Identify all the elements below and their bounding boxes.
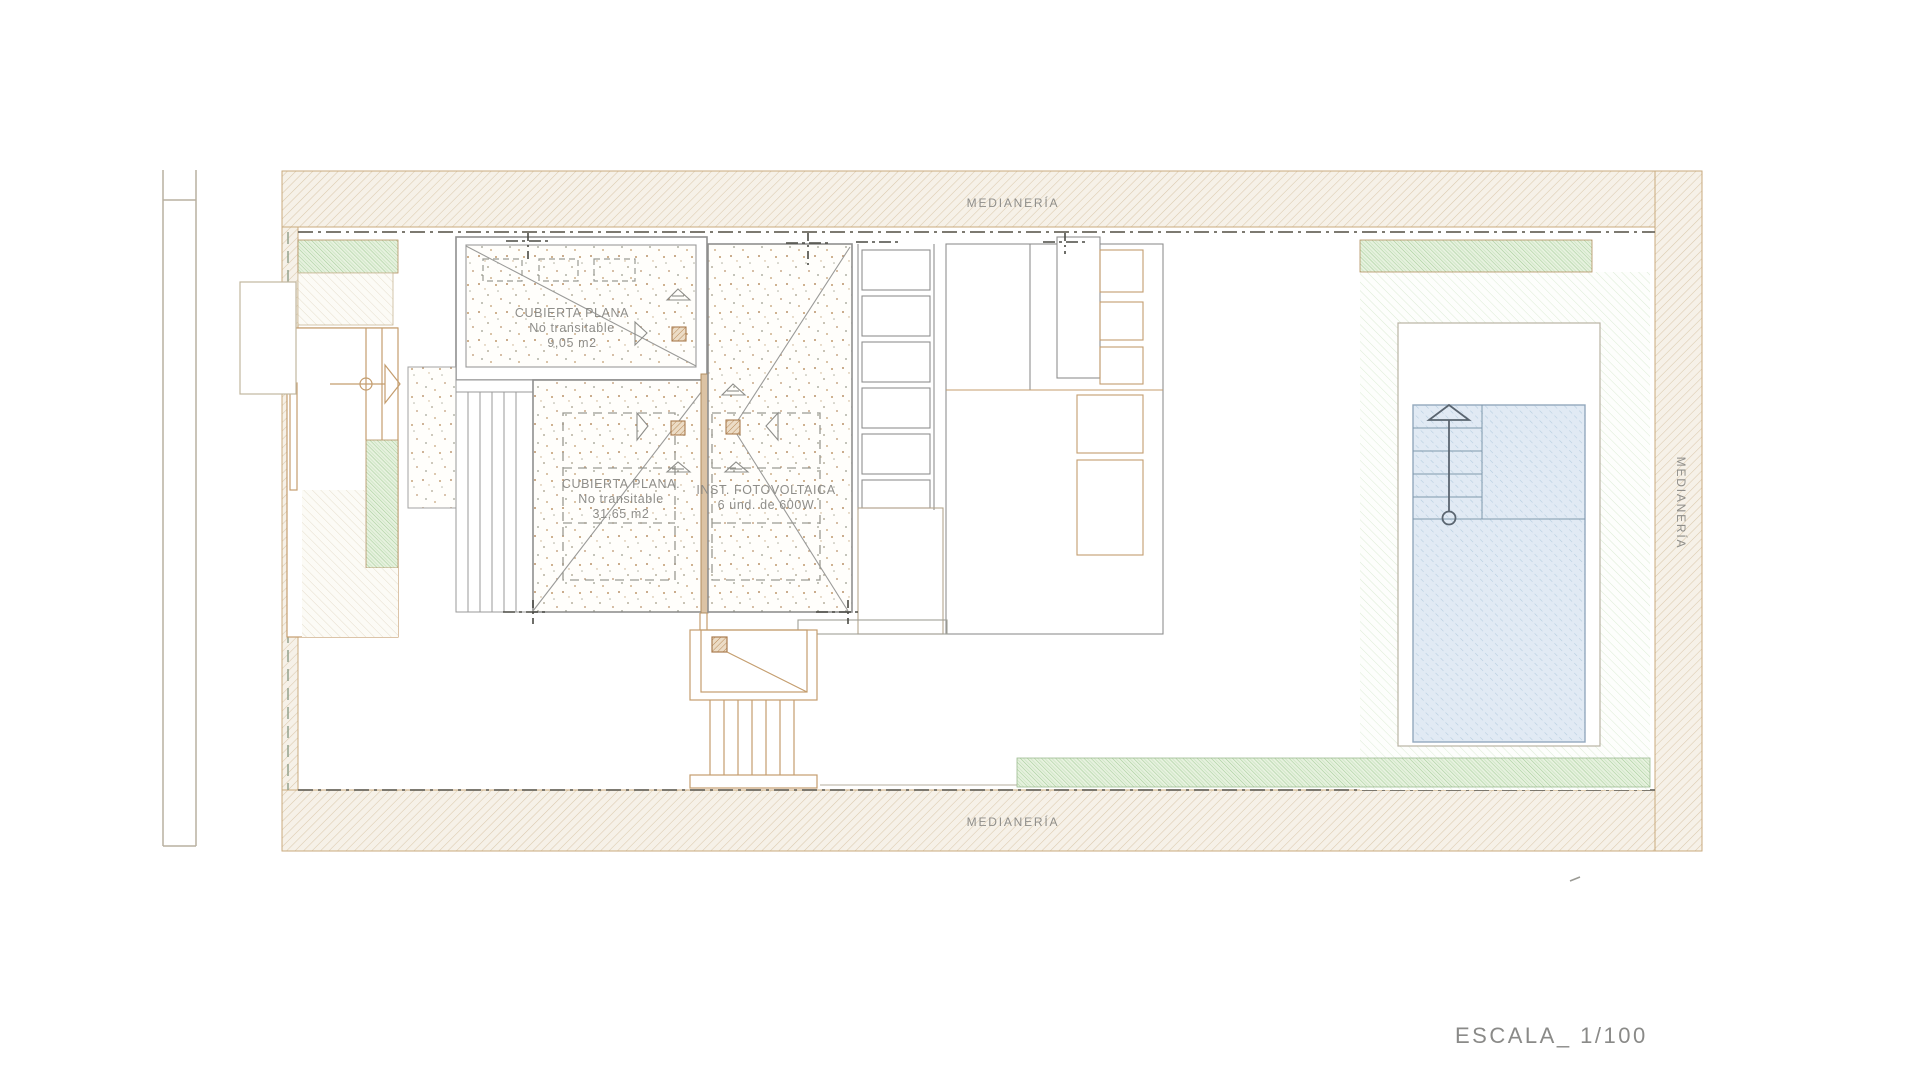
planter-corridor-dense: [366, 440, 398, 568]
street-access-box: [240, 282, 296, 394]
medianeria-label-bottom: MEDIANERÍA: [967, 814, 1060, 829]
pool-top-planter: [1360, 240, 1592, 272]
terrace-edge: [798, 620, 947, 634]
medianeria-label-right: MEDIANERÍA: [1674, 457, 1689, 550]
gate-leaf: [290, 383, 297, 490]
roof-drain-pv: [726, 420, 740, 434]
roof-small-area: 9,05 m2: [547, 336, 596, 350]
roof-small-title: CUBIERTA PLANA: [515, 306, 629, 320]
scale-label: ESCALA_ 1/100: [1455, 1023, 1648, 1048]
bottom-lawn-strip: [1017, 758, 1650, 787]
left-neighbour-wall-lines: [163, 170, 196, 846]
roof-small: CUBIERTA PLANA No transitable 9,05 m2: [456, 237, 707, 380]
stray-tick-mark: [1570, 877, 1580, 881]
roof-main: CUBIERTA PLANA. No transitable 31,65 m2: [533, 380, 702, 612]
stair-treads: [710, 700, 794, 775]
planter-top-dense: [298, 240, 398, 273]
pergola-louvers: [858, 244, 943, 634]
terrace-steps: [408, 367, 533, 612]
roof-main-subtitle: No transitable: [578, 492, 664, 506]
roof-plan-sheet: CUBIERTA PLANA No transitable 9,05 m2 CU…: [0, 0, 1920, 1080]
roof-photovoltaic: INST. FOTOVOLTAICA 6 und. de 600W: [696, 244, 852, 612]
pv-title: INST. FOTOVOLTAICA: [696, 483, 835, 497]
roof-plan-drawing: CUBIERTA PLANA No transitable 9,05 m2 CU…: [0, 0, 1920, 1080]
roof-main-title: CUBIERTA PLANA.: [562, 477, 680, 491]
roof-drain-main: [671, 421, 685, 435]
entrance-stair: [690, 613, 817, 788]
entrance-corridor: [287, 328, 400, 637]
medianeria-label-top: MEDIANERÍA: [967, 195, 1060, 210]
planter-top-light: [298, 273, 393, 325]
roof-drain-small: [672, 327, 686, 341]
roof-small-subtitle: No transitable: [529, 321, 615, 335]
pv-subtitle: 6 und. de 600W: [718, 498, 815, 512]
roof-main-area: 31,65 m2: [593, 507, 650, 521]
swimming-pool: [1413, 405, 1585, 742]
left-garden: [287, 240, 398, 328]
